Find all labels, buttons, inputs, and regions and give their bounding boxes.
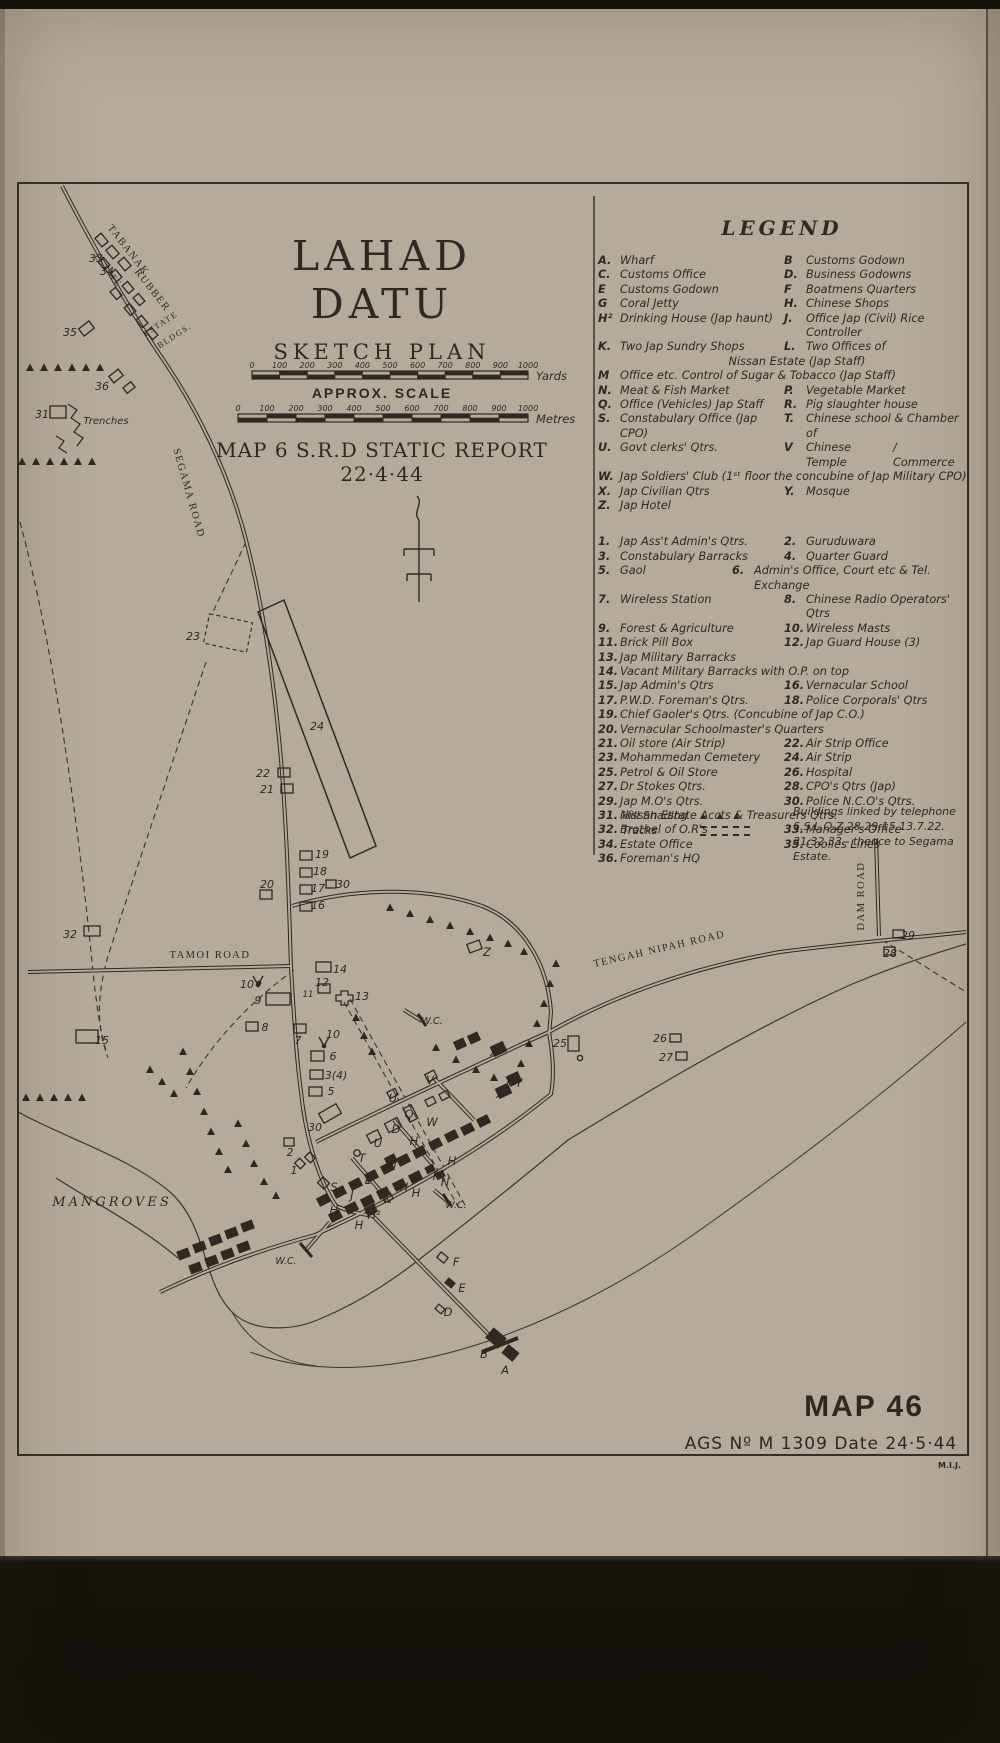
telephone-note-line: 6.S.L.Q.Z.28.29.15.13.7.22. xyxy=(793,819,978,834)
map-label: B xyxy=(480,1347,488,1361)
legend-title: LEGEND xyxy=(598,216,966,240)
tracks-label: Tracks xyxy=(622,823,700,838)
legend-row: 19.Chief Gaoler's Qtrs. (Concubine of Ja… xyxy=(598,708,966,722)
map-label: 36 xyxy=(95,380,109,393)
map-label: W.C. xyxy=(445,1200,466,1211)
map-label: Q xyxy=(404,1107,413,1121)
scale-tick-label: 900 xyxy=(491,404,506,413)
hill-shading-sample-icon: ▲ ▲ ▲ xyxy=(700,808,744,823)
map-label: 20 xyxy=(260,878,274,891)
scale-tick-label: 500 xyxy=(375,404,390,413)
scale-bar-segment xyxy=(267,414,296,418)
map-label: T xyxy=(358,1151,366,1165)
map-label: 30 xyxy=(336,878,350,891)
scale-tick-label: 200 xyxy=(288,404,303,413)
map-label: MANGROVES xyxy=(51,1195,171,1210)
map-label: 10 xyxy=(240,978,254,991)
scale-tick-label: 700 xyxy=(433,404,448,413)
scale-unit-label: Metres xyxy=(536,412,575,426)
telephone-note-line: Buildings linked by telephone xyxy=(793,804,978,819)
map-label: 11 xyxy=(303,990,314,1000)
legend-row: 3.Constabulary Barracks4.Quarter Guard xyxy=(598,550,966,564)
map-label: 3(4) xyxy=(325,1069,348,1082)
title-block: LAHAD DATU SKETCH PLAN APPROX. SCALE xyxy=(212,232,552,401)
legend-row: 27.Dr Stokes Qtrs.28.CPO's Qtrs (Jap) xyxy=(598,780,966,794)
legend-row: 5.Gaol6.Admin's Office, Court etc & Tel.… xyxy=(598,564,966,593)
map-label: 2 xyxy=(287,1146,294,1159)
map-label: L xyxy=(365,1173,371,1187)
legend-row: 14.Vacant Military Barracks with O.P. on… xyxy=(598,665,966,679)
telephone-note-line: 31.32.33.- thence to Segama xyxy=(793,834,978,849)
legend-panel: LEGEND A.WharfBCustoms GodownC.Customs O… xyxy=(598,216,966,867)
legend-row: 20.Vernacular Schoolmaster's Quarters xyxy=(598,723,966,737)
scale-bar-segment xyxy=(412,418,441,422)
map-label: 26 xyxy=(653,1032,667,1045)
scale-tick-label: 0 xyxy=(235,404,240,413)
map-label: DAM ROAD xyxy=(856,862,867,931)
map-label: Z xyxy=(482,945,492,959)
telephone-note: Buildings linked by telephone6.S.L.Q.Z.2… xyxy=(793,804,978,864)
map-label: 35 xyxy=(63,326,77,339)
map-number: MAP 46 xyxy=(764,1390,964,1424)
map-label: D xyxy=(392,1122,401,1136)
photographed-map-sheet: 01002003004005006007008009001000Yards010… xyxy=(0,0,1000,1743)
map-label: 34 xyxy=(100,265,114,278)
scale-bar-segment xyxy=(325,414,354,418)
wireless-mast-icon xyxy=(322,1044,325,1047)
map-label: W.C. xyxy=(275,1256,296,1267)
scale-bar-segment xyxy=(383,414,412,418)
map-label: 1 xyxy=(291,1164,298,1177)
map-label: 10 xyxy=(326,1028,340,1041)
legend-row: Q.Office (Vehicles) Jap StaffR.Pig slaug… xyxy=(598,398,966,412)
paper-left-edge xyxy=(0,9,5,1556)
scale-bar-segment xyxy=(499,414,528,418)
map-label: 23 xyxy=(186,630,200,643)
scale-tick-label: 400 xyxy=(346,404,361,413)
map-label: U xyxy=(389,1091,398,1105)
map-label: H xyxy=(412,1186,421,1200)
photo-bottom-edge xyxy=(0,1556,1000,1743)
legend-row: N.Meat & Fish MarketP.Vegetable Market xyxy=(598,384,966,398)
legend-lettered-list: A.WharfBCustoms GodownC.Customs OfficeD.… xyxy=(598,254,966,513)
legend-row: 23.Mohammedan Cemetery24.Air Strip xyxy=(598,751,966,765)
map-label: P xyxy=(433,1169,440,1183)
map-label: W.C. xyxy=(421,1016,442,1027)
legend-row: U.Govt clerks' Qtrs.VChinese Temple/ Com… xyxy=(598,441,966,470)
scale-bar-segment xyxy=(296,418,325,422)
map-label: N xyxy=(441,1175,450,1189)
map-label: E xyxy=(458,1281,466,1295)
map-label: 6 xyxy=(330,1050,337,1063)
point-marker xyxy=(257,981,262,986)
legend-row: S.Constabulary Office (Jap CPO)T.Chinese… xyxy=(598,412,966,441)
map-label: Y xyxy=(515,1076,523,1090)
legend-row: 7.Wireless Station8.Chinese Radio Operat… xyxy=(598,593,966,622)
legend-row: 15.Jap Admin's Qtrs16.Vernacular School xyxy=(598,679,966,693)
map-label: W xyxy=(426,1115,438,1129)
map-label: 30 xyxy=(308,1121,322,1134)
map-label: 18 xyxy=(313,865,327,878)
legend-row: 25.Petrol & Oil Store26.Hospital xyxy=(598,766,966,780)
map-label: 27 xyxy=(659,1051,673,1064)
map-label: H xyxy=(410,1134,419,1148)
legend-row: Nissan Estate (Jap Staff) xyxy=(598,355,966,369)
map-label: 25 xyxy=(553,1037,567,1050)
map-label: U xyxy=(374,1136,383,1150)
map-label: F xyxy=(453,1255,460,1269)
map-label: 16 xyxy=(311,899,325,912)
map-label: H xyxy=(448,1154,457,1168)
ags-reference-line: AGS Nº M 1309 Date 24·5·44 xyxy=(656,1434,986,1454)
map-label: X xyxy=(495,1087,505,1101)
scale-tick-label: 800 xyxy=(462,404,477,413)
legend-row: 11.Brick Pill Box12.Jap Guard House (3) xyxy=(598,636,966,650)
map-label: 17 xyxy=(311,882,325,895)
map-label: Trenches xyxy=(83,416,128,427)
map-label: D xyxy=(444,1305,453,1319)
scale-tick-label: 300 xyxy=(317,404,332,413)
scale-heading: APPROX. SCALE xyxy=(212,385,552,401)
legend-row: GCoral JettyH.Chinese Shops xyxy=(598,297,966,311)
legend-row: K.Two Jap Sundry ShopsL.Two Offices of xyxy=(598,340,966,354)
map-label: 21 xyxy=(260,783,274,796)
map-label: 15 xyxy=(95,1034,109,1047)
map-label: 8 xyxy=(262,1021,269,1034)
legend-row: 21.Oil store (Air Strip)22.Air Strip Off… xyxy=(598,737,966,751)
map-label: 24 xyxy=(310,720,324,733)
map-label: A xyxy=(500,1363,509,1377)
legend-row: H²Drinking House (Jap haunt)J.Office Jap… xyxy=(598,312,966,341)
map-label: 28 xyxy=(883,947,897,960)
legend-row: Z.Jap Hotel xyxy=(598,499,966,513)
scale-tick-label: 100 xyxy=(259,404,274,413)
legend-row: A.WharfBCustoms Godown xyxy=(598,254,966,268)
photo-top-edge xyxy=(0,0,1000,9)
map-label: 32 xyxy=(63,928,77,941)
drafter-initials: M.I.J. xyxy=(938,1461,961,1470)
hill-shading-label: Hill Shading xyxy=(622,808,700,823)
legend-row: 13.Jap Military Barracks xyxy=(598,651,966,665)
legend-row: C.Customs OfficeD.Business Godowns xyxy=(598,268,966,282)
map-subtitle: SKETCH PLAN xyxy=(212,340,552,364)
map-label: 9 xyxy=(255,994,262,1007)
legend-row: X.Jap Civilian QtrsY.Mosque xyxy=(598,485,966,499)
legend-row: MOffice etc. Control of Sugar & Tobacco … xyxy=(598,369,966,383)
map-label: H xyxy=(355,1218,364,1232)
map-label: 5 xyxy=(328,1085,335,1098)
map-label: 12 xyxy=(315,976,329,989)
paper-right-edge xyxy=(986,9,1000,1556)
map-label: 13 xyxy=(355,990,369,1003)
telephone-note-line: Estate. xyxy=(793,849,978,864)
map-label: M xyxy=(387,1157,397,1171)
legend-notes: Hill Shading ▲ ▲ ▲ Tracks xyxy=(622,808,782,838)
map-label: H xyxy=(400,1180,409,1194)
tracks-sample-icon xyxy=(700,826,750,836)
map-label: 22 xyxy=(256,767,270,780)
scale-bar-segment xyxy=(238,418,267,422)
legend-row: 17.P.W.D. Foreman's Qtrs.18.Police Corpo… xyxy=(598,694,966,708)
map-label: 14 xyxy=(333,963,347,976)
legend-row: 9.Forest & Agriculture10.Wireless Masts xyxy=(598,622,966,636)
map-label: 33 xyxy=(89,252,103,265)
map-label: S xyxy=(330,1180,337,1194)
map-label: 31 xyxy=(35,408,49,421)
legend-row: W.Jap Soldiers' Club (1ˢᵗ floor the conc… xyxy=(598,470,966,484)
scale-bar-segment xyxy=(441,414,470,418)
map-label: 29 xyxy=(901,929,915,942)
map-label: 7 xyxy=(295,1034,302,1047)
map-label: V xyxy=(426,1073,435,1087)
map-label: H² xyxy=(367,1208,381,1222)
map-label: X xyxy=(489,1045,499,1059)
scale-bar-segment xyxy=(470,418,499,422)
scale-bar-segment xyxy=(354,418,383,422)
map-label: TAMOI ROAD xyxy=(170,950,251,961)
map-label: 19 xyxy=(315,848,329,861)
map-label: H xyxy=(330,1203,339,1217)
map-title: LAHAD DATU xyxy=(212,232,552,328)
report-line: MAP 6 S.R.D STATIC REPORT 22·4·44 xyxy=(212,438,552,486)
legend-row: ECustoms GodownFBoatmens Quarters xyxy=(598,283,966,297)
scale-tick-label: 600 xyxy=(404,404,419,413)
legend-row: 1.Jap Ass't Admin's Qtrs.2.Guruduwara xyxy=(598,535,966,549)
